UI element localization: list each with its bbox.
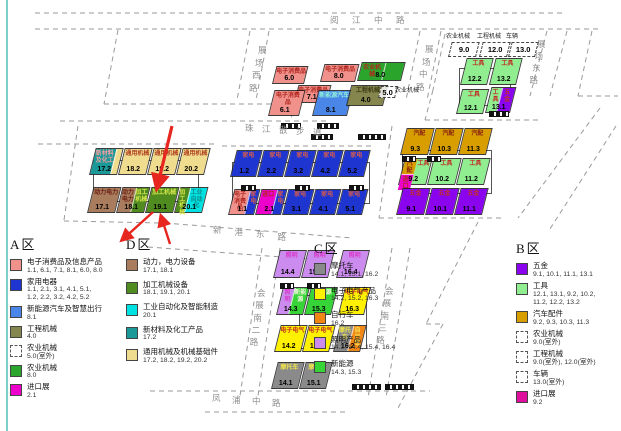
highlight-arrow — [161, 216, 170, 244]
highlight-arrows — [0, 0, 621, 431]
highlight-arrow — [157, 126, 172, 188]
venue-map: 电子消费品6.0电子消费品8.0农业机械8.0电子消费品7.1电子消费品6.1新… — [0, 0, 621, 431]
highlight-arrow — [122, 212, 153, 240]
